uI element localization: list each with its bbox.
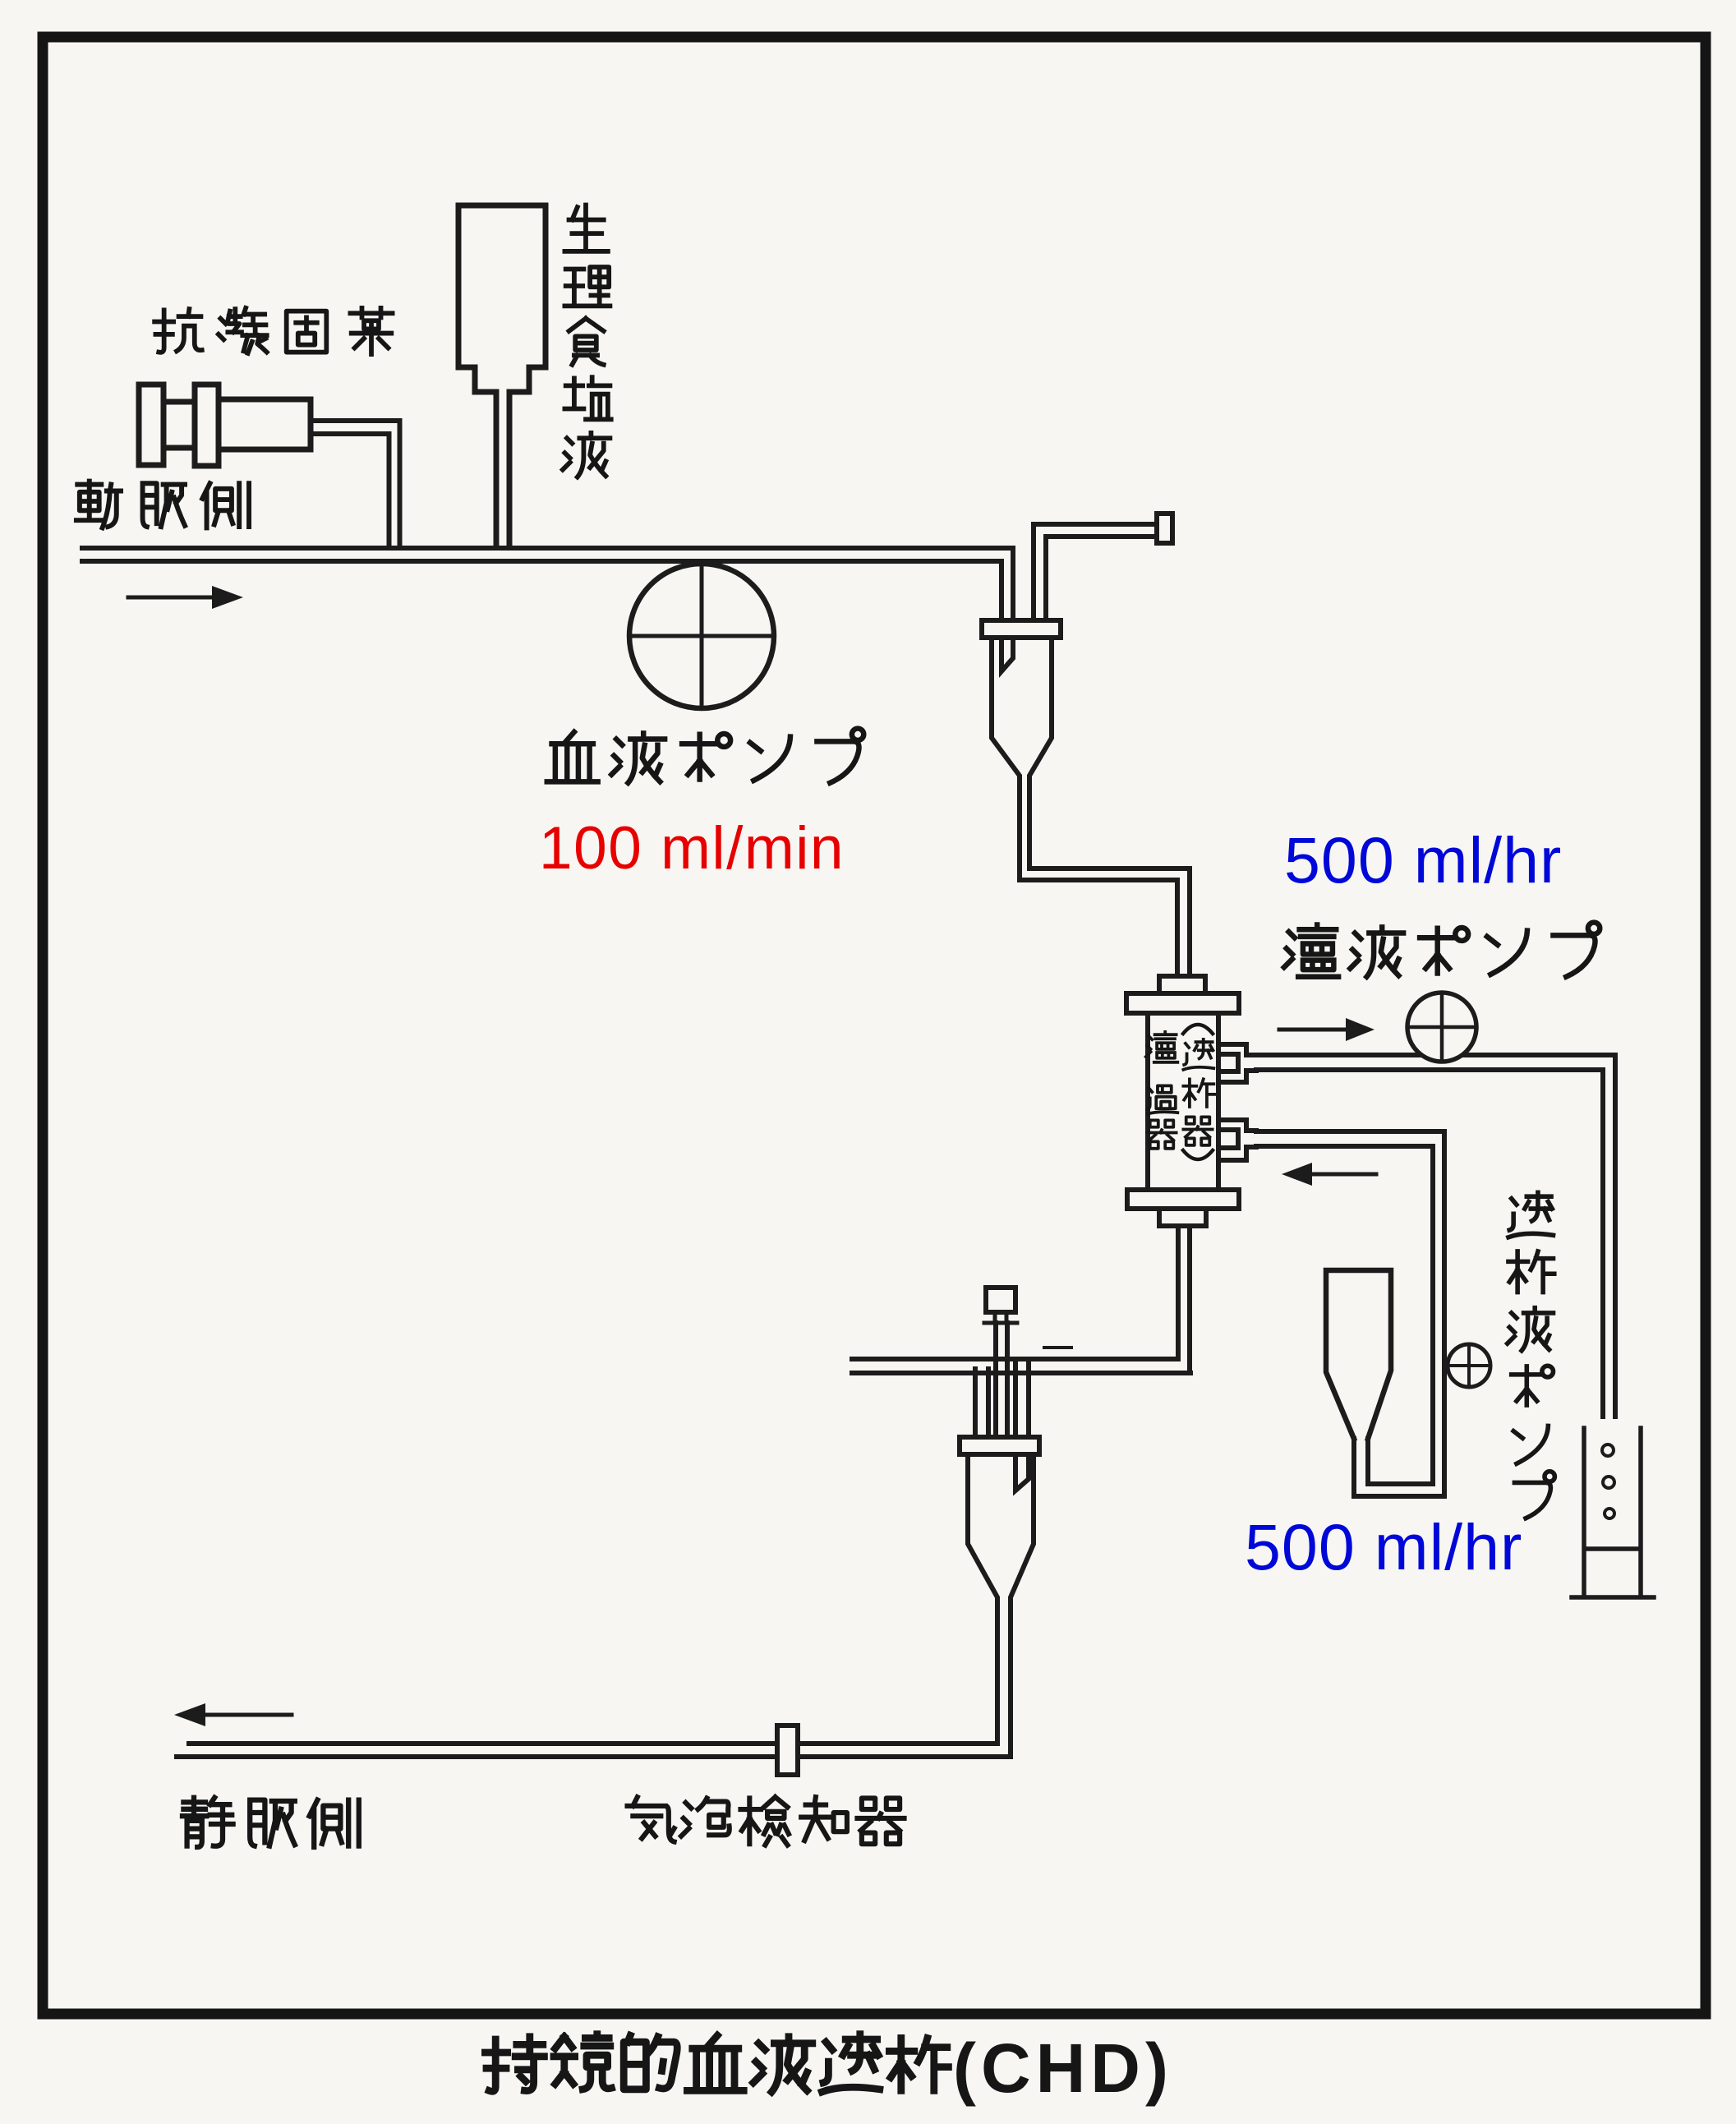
svg-text:100 ml/min: 100 ml/min (539, 815, 845, 882)
svg-text:500 ml/hr: 500 ml/hr (1245, 1510, 1522, 1583)
svg-text:500 ml/hr: 500 ml/hr (1284, 823, 1562, 896)
svg-text:(CHD): (CHD) (953, 2030, 1173, 2107)
